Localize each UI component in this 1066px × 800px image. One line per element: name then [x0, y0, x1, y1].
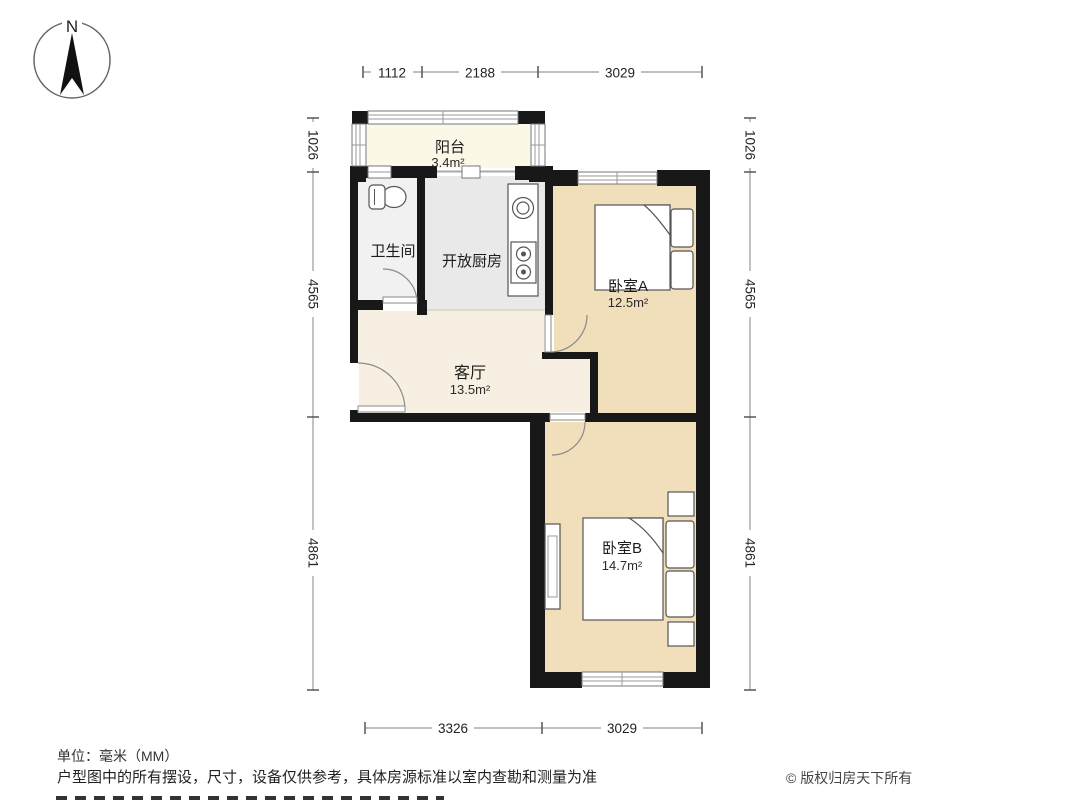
dim-top-2: 2188 — [465, 66, 495, 81]
nightstand-icon — [668, 622, 694, 646]
wall — [518, 111, 545, 124]
kitchen-label: 开放厨房 — [442, 253, 502, 270]
hall-passage-floor — [545, 359, 590, 413]
wall — [417, 300, 427, 315]
balcony-area: 3.4m² — [431, 155, 465, 170]
wall-bedroomB-left — [530, 413, 545, 688]
living-label: 客厅 — [454, 364, 486, 382]
dim-right-1: 1026 — [743, 130, 758, 160]
dim-left-3: 4861 — [306, 538, 321, 568]
unit-note: 单位：毫米（MM） — [57, 746, 178, 766]
dimension-right: 1026 4565 4861 — [742, 118, 758, 690]
wall-right-exterior — [696, 170, 710, 688]
dim-bottom-2: 3029 — [607, 721, 637, 736]
toilet-icon — [369, 185, 406, 209]
kitchen-counter — [508, 184, 538, 296]
bedroomB-area: 14.7m² — [602, 558, 643, 573]
truncated-text-line — [56, 796, 444, 800]
bedroomB-radiator-icon — [545, 524, 560, 609]
compass-north-label: N — [66, 17, 78, 36]
dim-left-2: 4565 — [306, 279, 321, 309]
copyright-text: © 版权归房天下所有 — [786, 768, 912, 788]
bedroomA-area: 12.5m² — [608, 295, 649, 310]
dim-top-3: 3029 — [605, 66, 635, 81]
bedroomB-label: 卧室B — [602, 540, 642, 557]
wall — [542, 352, 598, 359]
wall-living-bottom — [350, 413, 550, 422]
wall-bedroomB-top — [585, 413, 710, 422]
compass: N — [34, 17, 110, 98]
wall-bath-kitchen — [417, 170, 425, 302]
wall — [590, 359, 598, 417]
bathroom-window — [368, 166, 391, 178]
dimension-bottom: 3326 3029 — [365, 720, 702, 736]
wall — [663, 672, 710, 688]
dimension-top: 1112 2188 3029 — [363, 64, 702, 81]
bedroomA-label: 卧室A — [608, 278, 648, 295]
wall — [530, 672, 582, 688]
wall-kitchen-bedroomA — [545, 170, 553, 315]
bathroom-label: 卫生间 — [370, 243, 415, 260]
dimension-left: 1026 4565 4861 — [305, 118, 321, 690]
dim-right-2: 4565 — [743, 279, 758, 309]
wall — [358, 300, 383, 310]
floor-plan-canvas: 阳台 3.4m² 卫生间 开放厨房 客厅 13.5m² 卧室A 12.5m² 卧… — [0, 0, 1066, 800]
balcony-window-right — [531, 124, 545, 166]
balcony-window-top — [368, 111, 518, 124]
nightstand-icon — [668, 492, 694, 516]
bedroomA-window — [578, 172, 657, 184]
balcony-window-left — [352, 124, 366, 166]
balcony-label: 阳台 — [435, 139, 465, 156]
disclaimer-text: 户型图中的所有摆设，尺寸，设备仅供参考，具体房源标准以室内查勘和测量为准 — [57, 766, 597, 787]
living-area: 13.5m² — [450, 382, 491, 397]
wall — [391, 166, 437, 178]
dim-right-3: 4861 — [743, 538, 758, 568]
living-floor — [358, 310, 545, 413]
wall — [352, 111, 368, 124]
bedroomB-window — [582, 672, 663, 686]
dim-left-1: 1026 — [306, 130, 321, 160]
north-needle-icon — [60, 33, 84, 95]
dim-bottom-1: 3326 — [438, 721, 468, 736]
dim-top-1: 1112 — [378, 66, 406, 81]
